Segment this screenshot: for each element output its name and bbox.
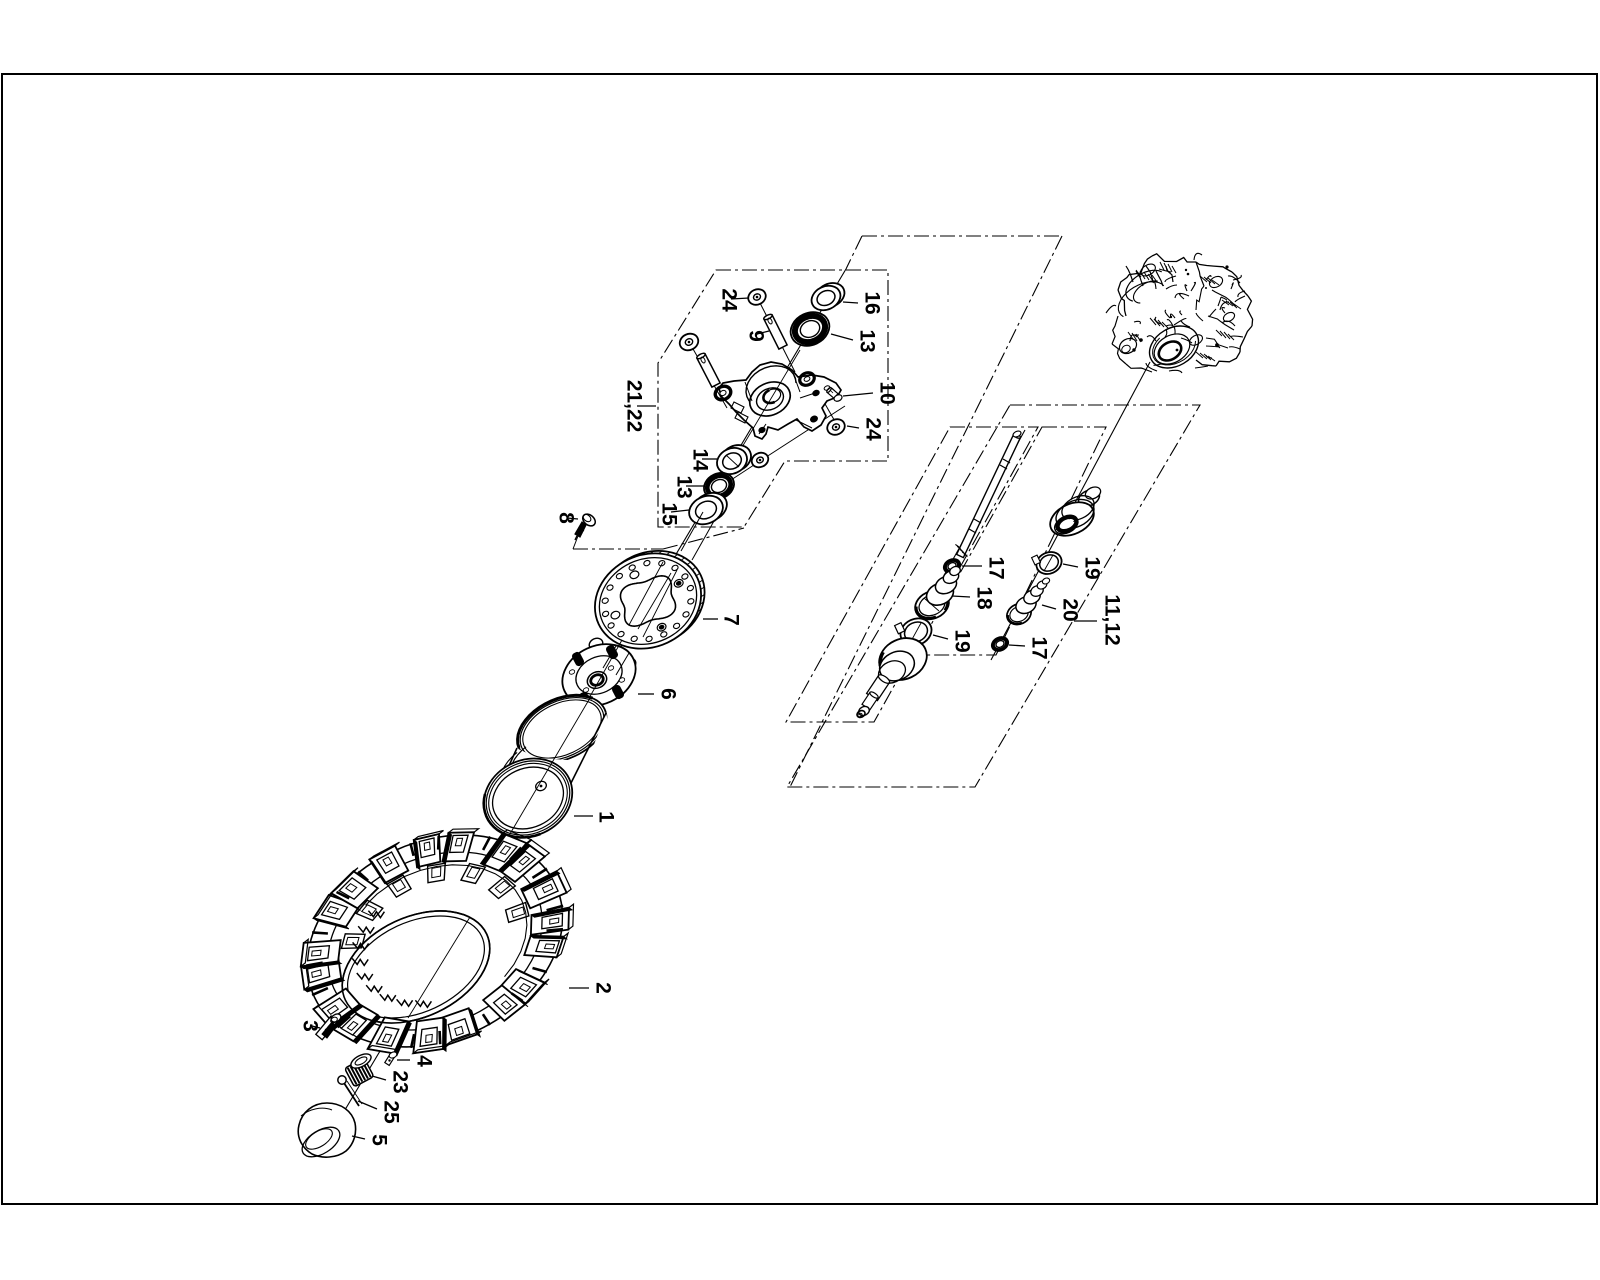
svg-text:24: 24: [718, 288, 741, 312]
svg-text:16: 16: [861, 291, 884, 314]
svg-text:1: 1: [595, 811, 618, 823]
svg-text:8: 8: [555, 512, 578, 524]
svg-text:9: 9: [745, 330, 768, 342]
svg-text:11,12: 11,12: [1101, 594, 1124, 645]
svg-text:13: 13: [856, 329, 879, 352]
svg-text:13: 13: [673, 475, 696, 498]
svg-text:17: 17: [985, 556, 1008, 579]
svg-text:18: 18: [973, 586, 996, 610]
svg-text:2: 2: [592, 982, 615, 994]
svg-text:3: 3: [299, 1020, 322, 1032]
svg-text:19: 19: [951, 629, 974, 652]
svg-text:19: 19: [1081, 556, 1104, 579]
svg-text:25: 25: [380, 1100, 403, 1124]
svg-text:20: 20: [1059, 598, 1082, 621]
svg-text:5: 5: [368, 1134, 391, 1146]
svg-text:21,22: 21,22: [623, 380, 646, 433]
svg-text:24: 24: [862, 417, 885, 441]
svg-text:10: 10: [876, 381, 899, 404]
svg-text:4: 4: [413, 1055, 436, 1067]
svg-text:14: 14: [689, 448, 712, 472]
svg-text:23: 23: [389, 1070, 412, 1093]
svg-text:6: 6: [657, 688, 680, 700]
svg-text:7: 7: [720, 614, 743, 626]
svg-text:15: 15: [658, 502, 681, 526]
svg-text:17: 17: [1028, 636, 1051, 659]
